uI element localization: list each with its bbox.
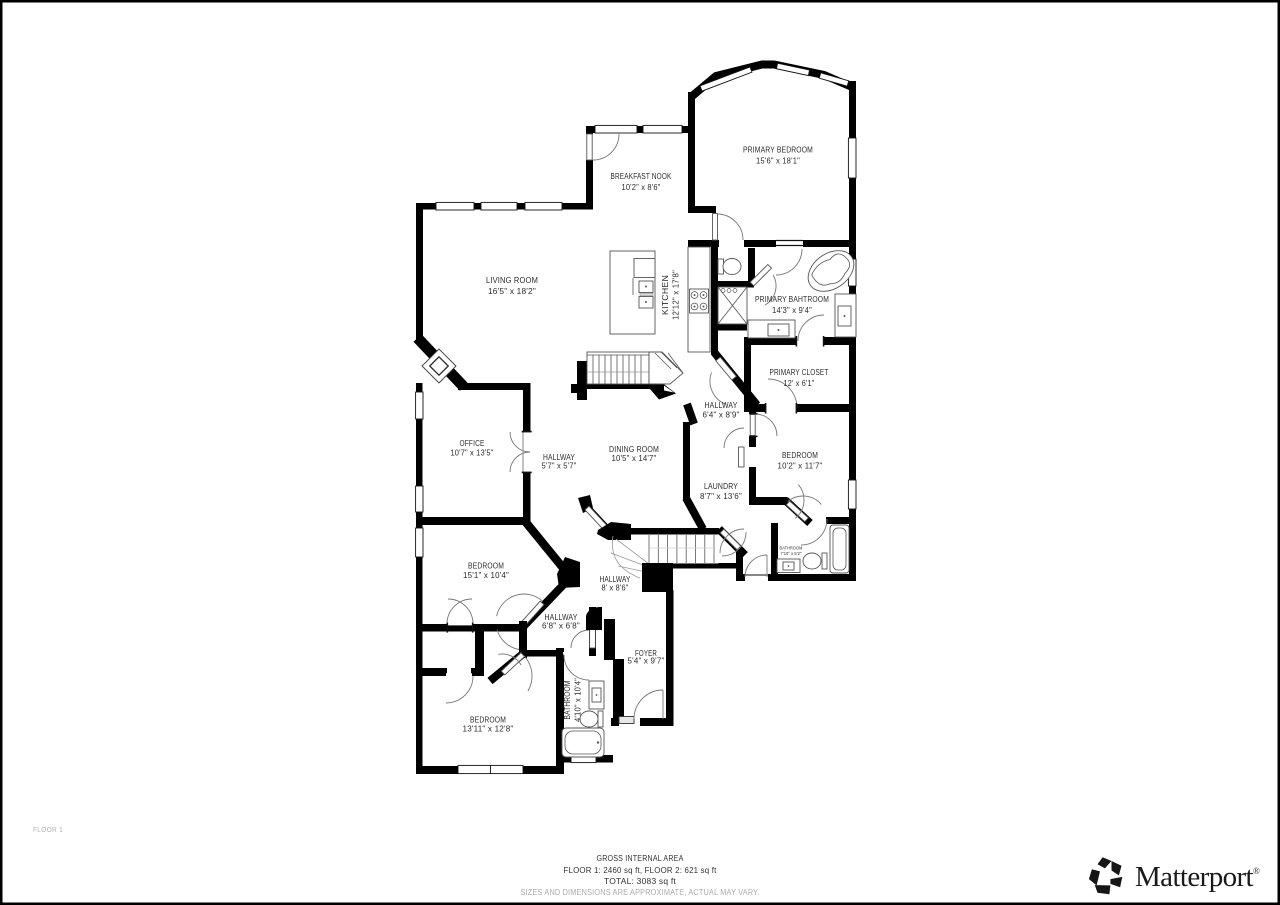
- svg-text:BATHROOM: BATHROOM: [780, 546, 803, 551]
- svg-text:FLOOR 1: FLOOR 1: [33, 827, 63, 834]
- svg-text:BREAKFAST NOOK: BREAKFAST NOOK: [611, 171, 672, 181]
- svg-text:15'6" x 18'1": 15'6" x 18'1": [756, 156, 800, 166]
- svg-text:TOTAL: 3083 sq ft: TOTAL: 3083 sq ft: [604, 877, 677, 886]
- svg-text:10'7" x 13'5": 10'7" x 13'5": [451, 448, 494, 458]
- svg-text:7'10" x 5'2": 7'10" x 5'2": [781, 551, 802, 556]
- svg-text:FLOOR 1: 2460 sq ft, FLOOR 2:: FLOOR 1: 2460 sq ft, FLOOR 2: 621 sq ft: [564, 866, 718, 875]
- svg-text:BEDROOM: BEDROOM: [468, 561, 504, 571]
- svg-text:BEDROOM: BEDROOM: [782, 450, 818, 460]
- svg-text:GROSS INTERNAL AREA: GROSS INTERNAL AREA: [597, 854, 685, 863]
- svg-text:14'3" x 9'4": 14'3" x 9'4": [772, 305, 812, 315]
- svg-text:5'7" x 5'7": 5'7" x 5'7": [542, 461, 577, 471]
- svg-text:10'2" x 11'7": 10'2" x 11'7": [778, 461, 823, 471]
- svg-text:13'11" x 12'8": 13'11" x 12'8": [463, 724, 514, 734]
- svg-text:KITCHEN: KITCHEN: [660, 275, 670, 315]
- svg-text:®: ®: [1253, 866, 1260, 876]
- svg-text:SIZES AND DIMENSIONS ARE APPRO: SIZES AND DIMENSIONS ARE APPROXIMATE, AC…: [521, 888, 760, 897]
- svg-text:6'8" x 6'8": 6'8" x 6'8": [542, 621, 580, 631]
- svg-text:5'4" x 9'7": 5'4" x 9'7": [628, 656, 665, 666]
- svg-text:OFFICE: OFFICE: [460, 438, 485, 448]
- svg-text:LAUNDRY: LAUNDRY: [704, 481, 738, 491]
- svg-text:HALLWAY: HALLWAY: [705, 400, 738, 410]
- svg-text:16'5" x 18'2": 16'5" x 18'2": [488, 286, 536, 296]
- svg-text:12' x 6'1": 12' x 6'1": [784, 378, 815, 388]
- svg-text:PRIMARY BAHTROOM: PRIMARY BAHTROOM: [755, 294, 829, 304]
- svg-text:LIVING ROOM: LIVING ROOM: [486, 275, 538, 285]
- svg-text:8'7" x 13'6": 8'7" x 13'6": [700, 491, 742, 501]
- svg-text:6'4" x 8'9": 6'4" x 8'9": [703, 410, 740, 420]
- svg-text:PRIMARY BEDROOM: PRIMARY BEDROOM: [743, 145, 813, 155]
- svg-text:10'2" x 8'6": 10'2" x 8'6": [622, 182, 661, 192]
- svg-text:BATHROOM: BATHROOM: [562, 681, 572, 720]
- svg-text:PRIMARY CLOSET: PRIMARY CLOSET: [770, 367, 829, 377]
- svg-text:4'10" x 10'4": 4'10" x 10'4": [573, 678, 583, 722]
- svg-text:12'12" x 17'8": 12'12" x 17'8": [671, 270, 681, 320]
- svg-text:8' x 8'6": 8' x 8'6": [602, 583, 629, 593]
- svg-text:Matterport: Matterport: [1135, 861, 1254, 893]
- svg-text:10'5" x 14'7": 10'5" x 14'7": [612, 453, 657, 463]
- svg-text:15'1" x 10'4": 15'1" x 10'4": [463, 570, 509, 580]
